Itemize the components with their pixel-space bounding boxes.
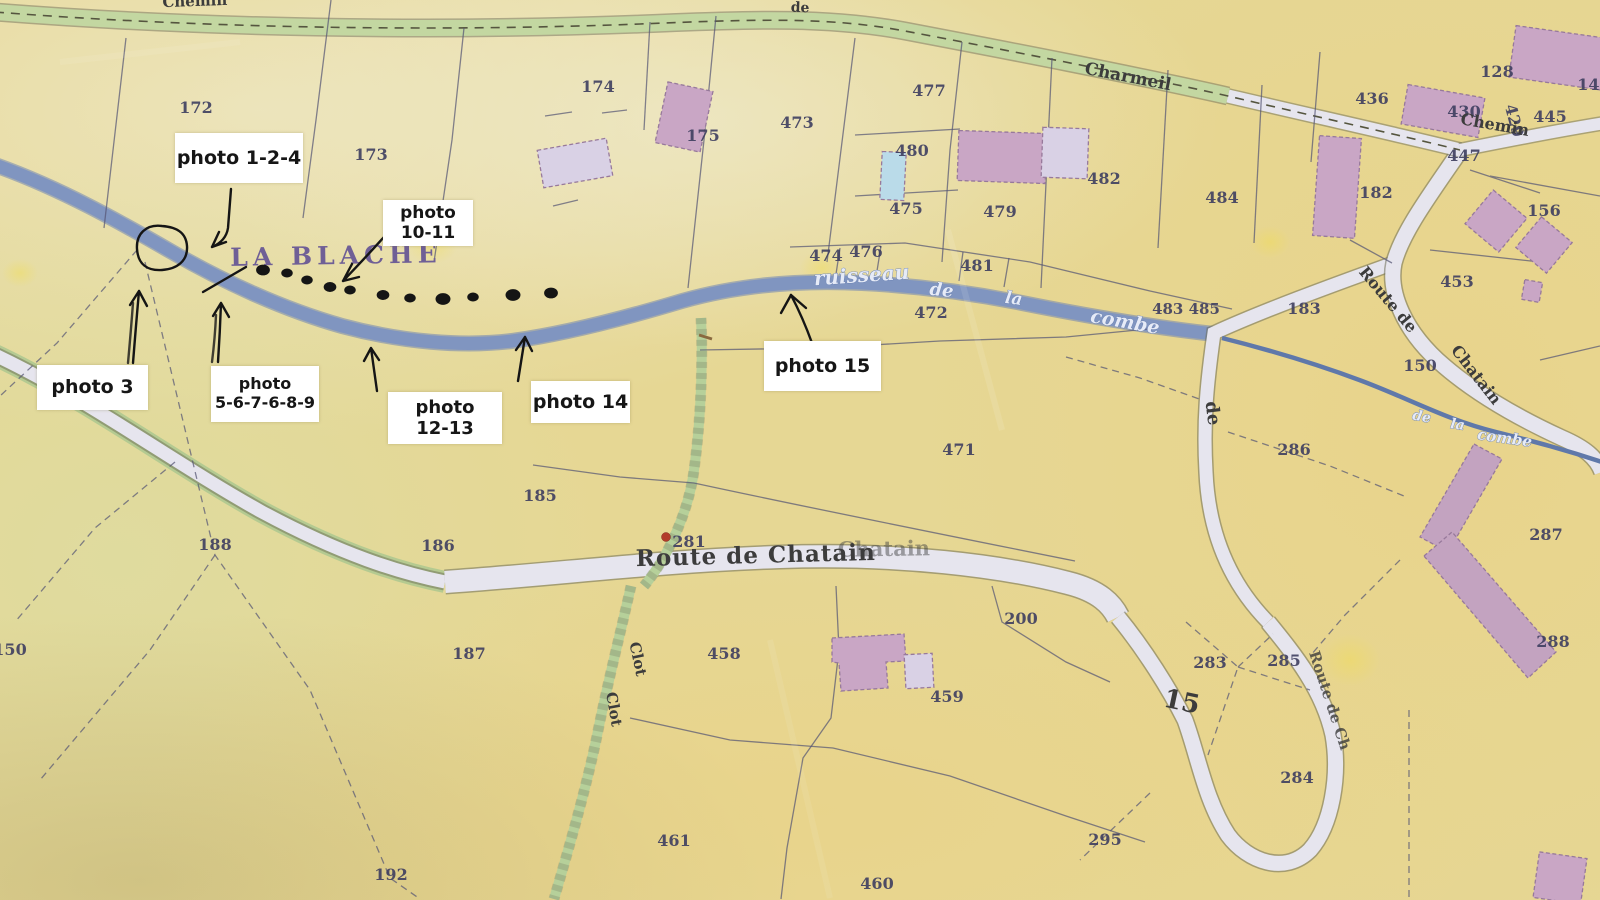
parcel-number-142: 142 — [1577, 75, 1600, 94]
stream-label-de: de — [929, 279, 955, 302]
photo-label-text: photo 15 — [775, 355, 870, 377]
parcel-number-192: 192 — [374, 865, 407, 884]
parcel-number-436: 436 — [1355, 89, 1388, 108]
parcel-number-188: 188 — [198, 535, 231, 554]
parcel-number-185: 185 — [523, 486, 556, 505]
annotation-dot — [256, 265, 270, 276]
parcel-number-445: 445 — [1533, 107, 1566, 126]
photo-label-12-13: photo 12-13 — [388, 392, 502, 444]
parcel-number-200: 200 — [1004, 609, 1037, 628]
parcel-number-182: 182 — [1359, 183, 1392, 202]
photo-label-text: 10-11 — [401, 223, 455, 243]
photo-label-5-6-7-6-8-9: photo 5-6-7-6-8-9 — [211, 366, 319, 422]
photo-label-3: photo 3 — [37, 365, 148, 410]
annotation-dot — [324, 282, 337, 292]
parcel-number-287: 287 — [1529, 525, 1562, 544]
parcel-number-461: 461 — [657, 831, 690, 850]
road-label-chatain: Chatain — [838, 535, 931, 562]
parcel-number-187: 187 — [452, 644, 485, 663]
parcel-number-173: 173 — [354, 145, 387, 164]
annotation-dot — [467, 293, 479, 302]
stream-label-la: la — [1449, 416, 1465, 434]
parcel-number-447: 447 — [1447, 146, 1480, 165]
parcel-number-476: 476 — [849, 242, 882, 261]
parcel-number-459: 459 — [930, 687, 963, 706]
photo-label-10-11: photo 10-11 — [383, 200, 473, 246]
annotation-dot — [344, 286, 356, 295]
photo-label-text: photo 1-2-4 — [177, 147, 301, 169]
annotation-dot — [436, 293, 451, 305]
annotation-dot — [377, 290, 390, 300]
road-label-de: de — [791, 0, 810, 16]
photo-label-text: photo — [415, 397, 474, 418]
parcel-number-183: 183 — [1287, 299, 1320, 318]
parcel-number-174: 174 — [581, 77, 614, 96]
parcel-number-477: 477 — [912, 81, 945, 100]
parcel-number-471: 471 — [942, 440, 975, 459]
parcel-number-475: 475 — [889, 199, 922, 218]
parcel-number-283: 283 — [1193, 653, 1226, 672]
photo-label-text: 5-6-7-6-8-9 — [215, 394, 315, 413]
parcel-number-458: 458 — [707, 644, 740, 663]
photo-label-14: photo 14 — [531, 381, 630, 423]
parcel-number-474: 474 — [809, 246, 842, 265]
stream-label-de: de — [1411, 408, 1432, 427]
stream-label-la: la — [1004, 288, 1024, 310]
photo-label-1-2-4: photo 1-2-4 — [175, 133, 303, 183]
parcel-number-175: 175 — [686, 126, 719, 145]
red-dot-marker — [662, 533, 671, 542]
photo-label-text: 12-13 — [416, 418, 474, 439]
parcel-number-284: 284 — [1280, 768, 1313, 787]
parcel-number-295: 295 — [1088, 830, 1121, 849]
parcel-number-286: 286 — [1277, 440, 1310, 459]
annotation-dot — [404, 294, 416, 303]
photo-label-text: photo — [400, 203, 456, 223]
photo-label-text: photo 3 — [51, 376, 133, 398]
parcel-number-172: 172 — [179, 98, 212, 117]
road-label-de: de — [1201, 400, 1225, 426]
parcel-number-480: 480 — [895, 141, 928, 160]
parcel-number-473: 473 — [780, 113, 813, 132]
parcel-number-285: 285 — [1267, 651, 1300, 670]
parcel-number-150: 150 — [0, 640, 27, 659]
parcel-number-156: 156 — [1527, 201, 1560, 220]
photo-label-15: photo 15 — [764, 341, 881, 391]
parcel-number-453: 453 — [1440, 272, 1473, 291]
annotation-dot — [506, 289, 521, 301]
parcel-number-483-485: 483 485 — [1152, 300, 1220, 318]
parcel-number-128: 128 — [1480, 62, 1513, 81]
parcel-number-460: 460 — [860, 874, 893, 893]
annotation-dot — [544, 288, 558, 299]
parcel-number-479: 479 — [983, 202, 1016, 221]
parcel-number-481: 481 — [960, 256, 993, 275]
photo-label-text: photo 14 — [533, 391, 628, 413]
annotation-dot — [301, 276, 313, 285]
annotation-dot — [281, 269, 293, 278]
parcel-number-484: 484 — [1205, 188, 1238, 207]
parcel-number-472: 472 — [914, 303, 947, 322]
photo-label-text: photo — [239, 375, 291, 394]
map-root: 1721731741754734774804754794824844361284… — [0, 0, 1600, 900]
parcel-number-150: 150 — [1403, 356, 1436, 375]
parcel-number-186: 186 — [421, 536, 454, 555]
parcel-number-288: 288 — [1536, 632, 1569, 651]
parcel-number-482: 482 — [1087, 169, 1120, 188]
